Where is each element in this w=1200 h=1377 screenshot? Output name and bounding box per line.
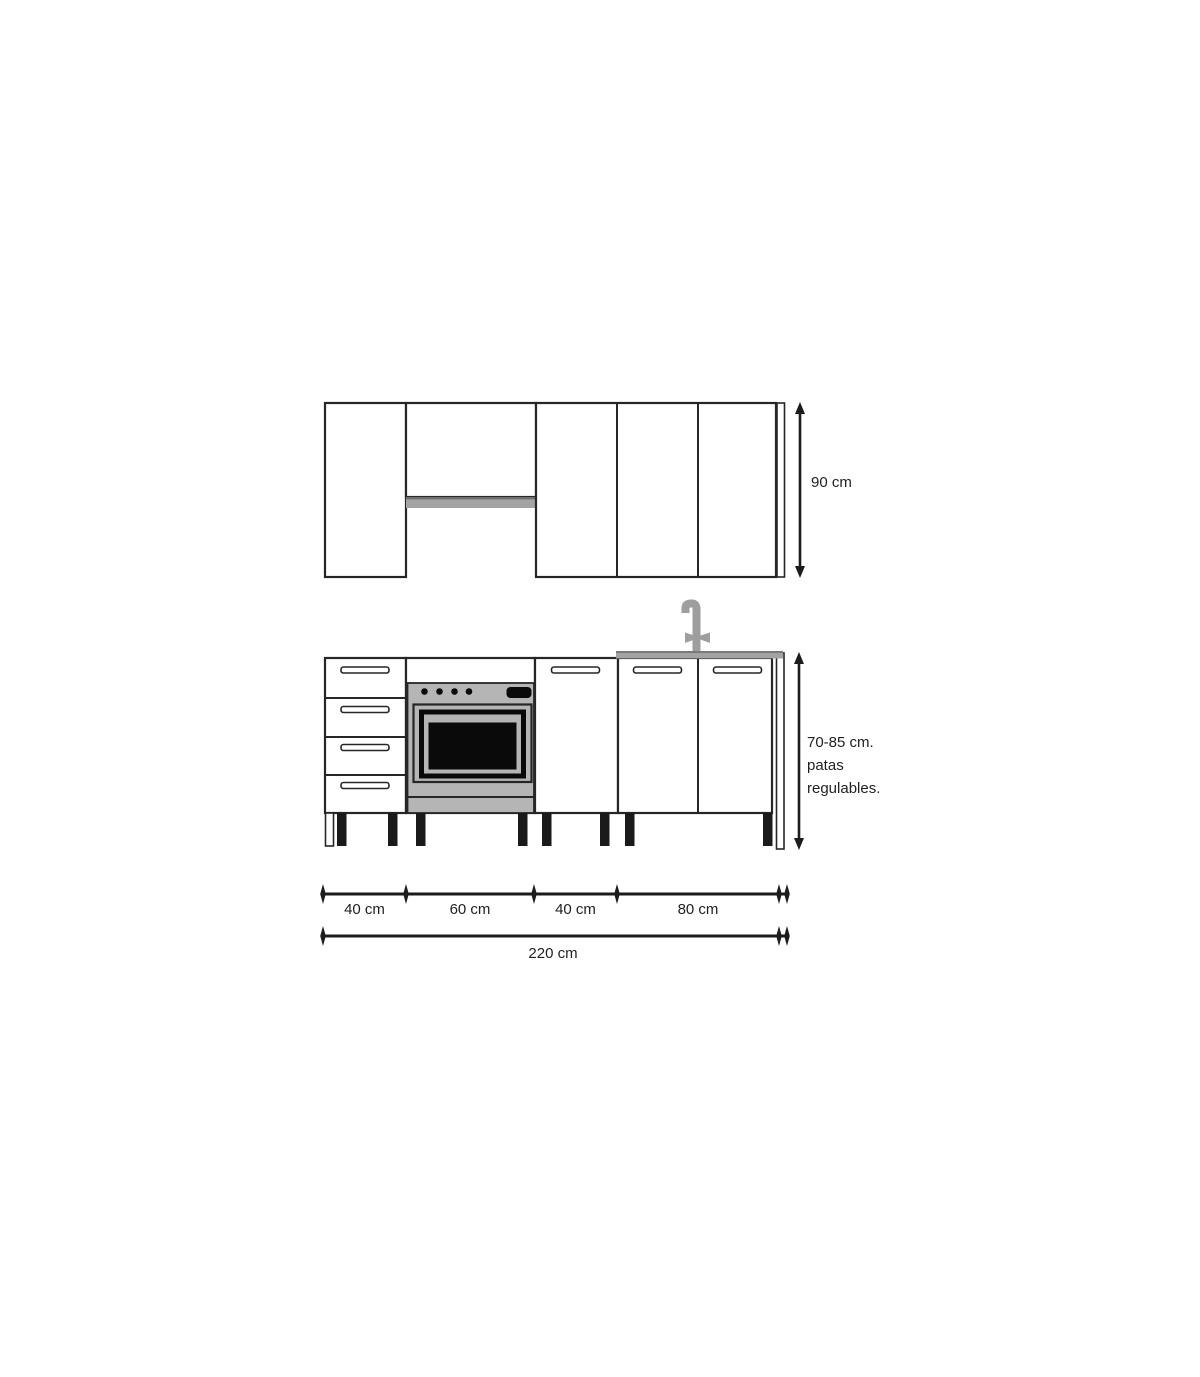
cabinet-leg xyxy=(763,813,773,846)
dim-height-arrow-bottom xyxy=(794,838,804,850)
dim-90-arrow-top xyxy=(795,402,805,414)
faucet xyxy=(685,604,710,654)
oven-knob xyxy=(421,688,428,695)
dim-tick xyxy=(320,884,326,904)
base-door-unit-40 xyxy=(535,658,618,813)
dim-90-arrow-bottom xyxy=(795,566,805,578)
upper-cabinet-tall xyxy=(325,403,406,577)
oven xyxy=(408,683,535,813)
door-handle xyxy=(634,667,682,673)
upper-cabinet-hood xyxy=(406,403,536,497)
door-handle xyxy=(714,667,762,673)
dim-tick xyxy=(531,884,537,904)
drawer-handle xyxy=(341,783,389,789)
dim-label-height-1: 70-85 cm. xyxy=(807,734,874,751)
total-width-label: 220 cm xyxy=(528,945,577,962)
cabinet-leg-outline xyxy=(326,813,334,846)
cabinet-leg xyxy=(518,813,528,846)
drawer-unit xyxy=(325,658,406,813)
upper-side-panel xyxy=(777,403,785,577)
cabinet-leg xyxy=(542,813,552,846)
oven-knob xyxy=(466,688,473,695)
width-label-1: 40 cm xyxy=(344,901,385,918)
drawer-handle xyxy=(341,707,389,713)
cabinet-leg xyxy=(337,813,347,846)
dim-tick xyxy=(776,884,782,904)
cabinet-leg xyxy=(625,813,635,846)
upper-run xyxy=(325,403,785,577)
width-dim-segments: 40 cm 60 cm 40 cm 80 cm xyxy=(320,884,790,918)
oven-display xyxy=(507,687,532,698)
width-label-2: 60 cm xyxy=(450,901,491,918)
faucet-spout xyxy=(686,604,697,654)
cabinet-leg xyxy=(388,813,398,846)
dim-label-height-3: regulables. xyxy=(807,780,880,797)
drawer-handle xyxy=(341,667,389,673)
cabinet-leg xyxy=(600,813,610,846)
drawer-handle xyxy=(341,745,389,751)
dim-height-arrow-top xyxy=(794,652,804,664)
dim-tick xyxy=(784,926,790,946)
oven-knob xyxy=(436,688,443,695)
door-handle xyxy=(552,667,600,673)
dim-tick xyxy=(403,884,409,904)
dim-arrow-height: 70-85 cm. patas regulables. xyxy=(794,652,880,850)
dim-tick xyxy=(776,926,782,946)
dim-label-height-2: patas xyxy=(807,757,844,774)
width-label-4: 80 cm xyxy=(678,901,719,918)
cabinet-leg xyxy=(416,813,426,846)
base-run xyxy=(325,651,784,849)
dim-label-90: 90 cm xyxy=(811,474,852,491)
hood-shelf-edge xyxy=(406,497,537,499)
width-label-3: 40 cm xyxy=(555,901,596,918)
sink-unit xyxy=(618,658,772,813)
dim-tick xyxy=(320,926,326,946)
oven-window xyxy=(429,723,517,770)
oven-knob xyxy=(451,688,458,695)
dim-tick xyxy=(784,884,790,904)
base-side-panel xyxy=(777,653,785,849)
dim-tick xyxy=(614,884,620,904)
dim-arrow-90: 90 cm xyxy=(795,402,852,578)
countertop-edge xyxy=(616,651,783,653)
upper-cabinet-right xyxy=(536,403,776,577)
kitchen-dimension-diagram: 90 cm xyxy=(0,0,1200,1377)
total-width-dim: 220 cm xyxy=(320,926,790,962)
